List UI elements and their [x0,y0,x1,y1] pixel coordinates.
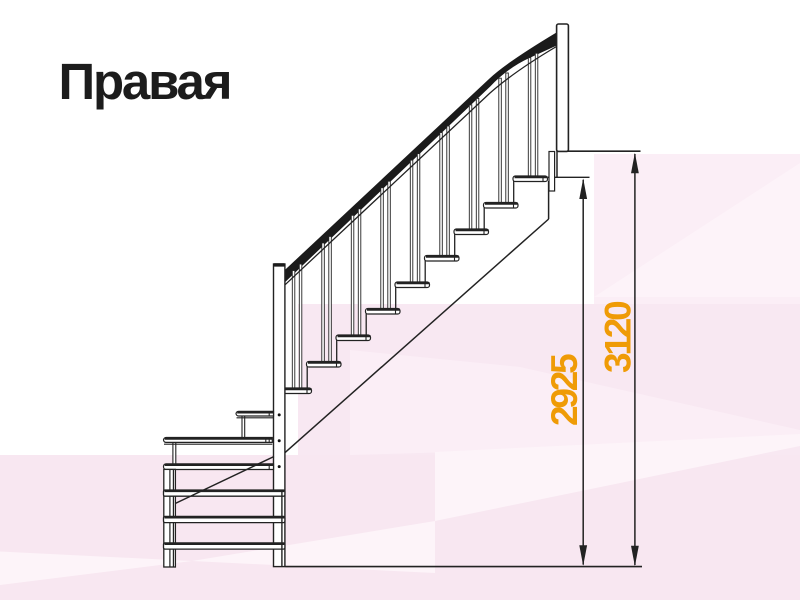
svg-text:2925: 2925 [544,354,585,426]
svg-text:3120: 3120 [597,301,638,373]
svg-text:Правая: Правая [59,53,231,110]
